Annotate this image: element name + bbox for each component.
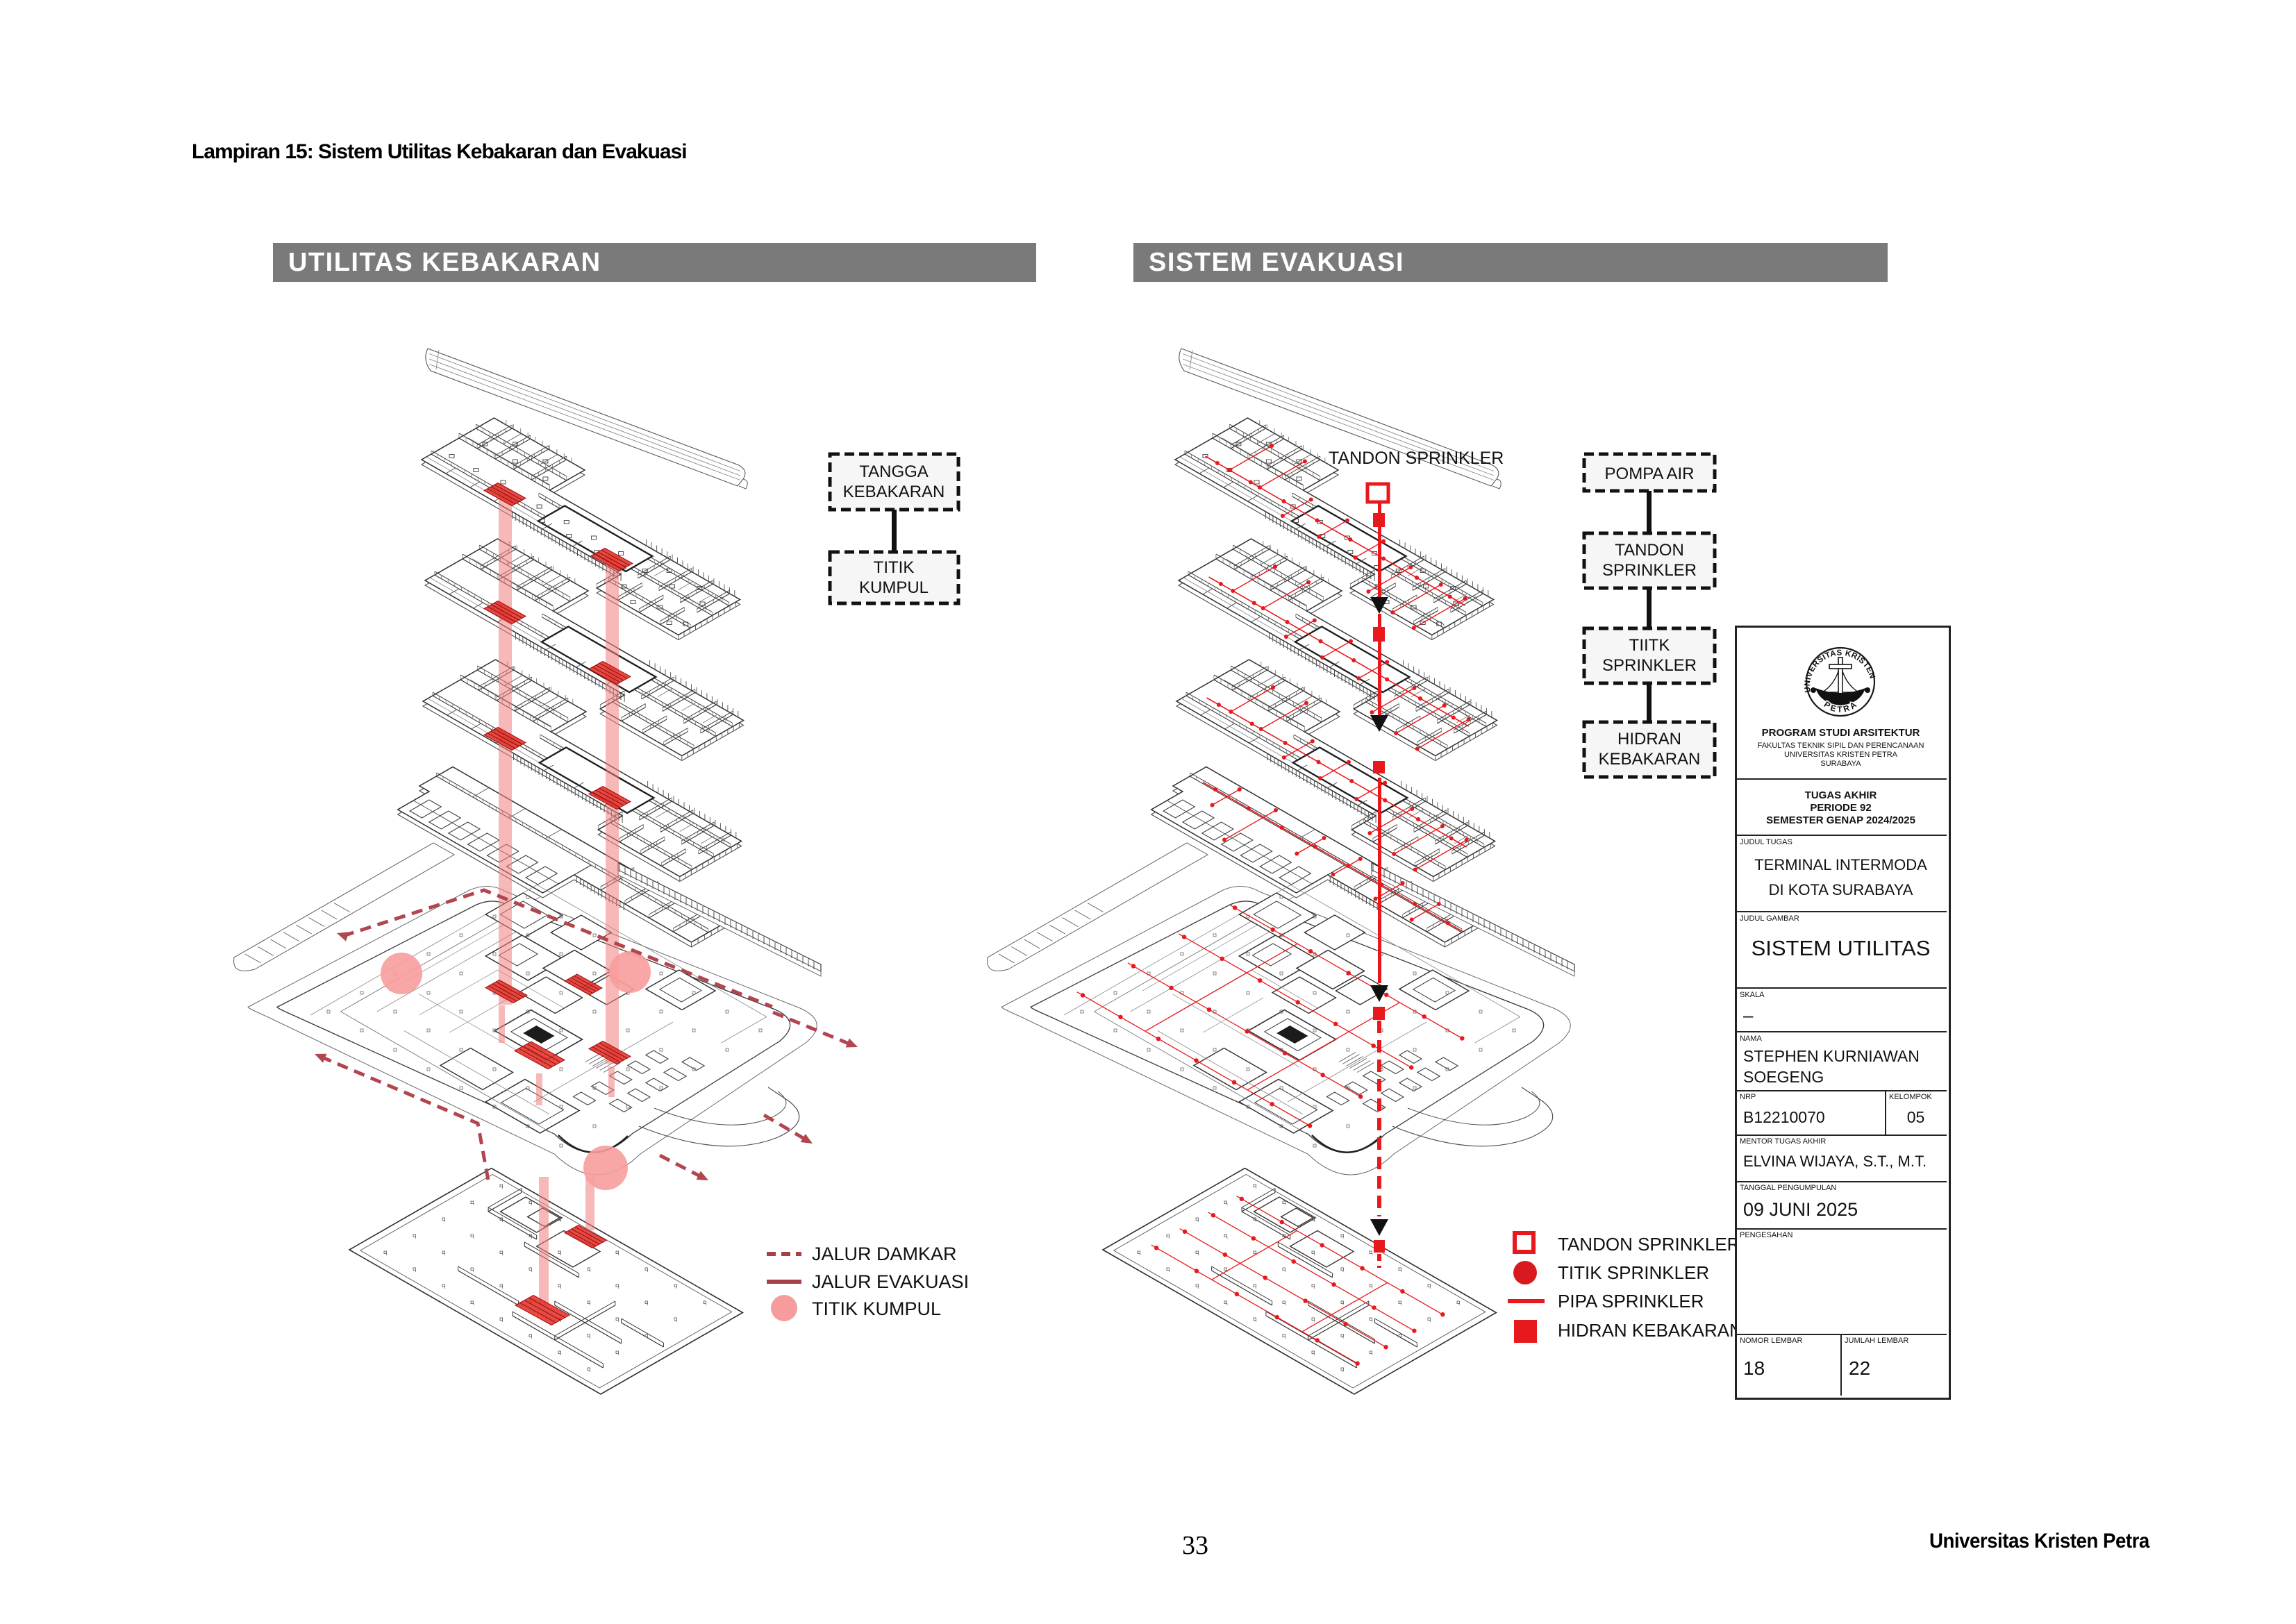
- svg-text:TIITK: TIITK: [1629, 636, 1670, 655]
- svg-text:TANDON SPRINKLER: TANDON SPRINKLER: [1329, 449, 1504, 468]
- svg-text:HIDRAN: HIDRAN: [1617, 730, 1681, 748]
- svg-text:SPRINKLER: SPRINKLER: [1602, 561, 1697, 580]
- svg-text:SPRINKLER: SPRINKLER: [1602, 656, 1697, 675]
- svg-text:TANDON: TANDON: [1615, 541, 1684, 560]
- svg-text:PIPA SPRINKLER: PIPA SPRINKLER: [1558, 1291, 1704, 1312]
- svg-text:TITIK: TITIK: [874, 558, 915, 577]
- svg-text:POMPA AIR: POMPA AIR: [1605, 464, 1695, 483]
- svg-text:KUMPUL: KUMPUL: [859, 578, 929, 597]
- svg-text:TANGGA: TANGGA: [859, 462, 929, 481]
- svg-text:TITIK KUMPUL: TITIK KUMPUL: [812, 1298, 941, 1319]
- svg-text:HIDRAN KEBAKARAN: HIDRAN KEBAKARAN: [1558, 1320, 1742, 1341]
- svg-text:TANDON SPRINKLER: TANDON SPRINKLER: [1558, 1234, 1740, 1255]
- svg-text:TITIK SPRINKLER: TITIK SPRINKLER: [1558, 1262, 1709, 1283]
- svg-text:KEBAKARAN: KEBAKARAN: [1599, 750, 1701, 769]
- svg-text:JALUR EVAKUASI: JALUR EVAKUASI: [812, 1271, 969, 1292]
- svg-text:KEBAKARAN: KEBAKARAN: [843, 483, 945, 501]
- svg-text:JALUR DAMKAR: JALUR DAMKAR: [812, 1244, 957, 1264]
